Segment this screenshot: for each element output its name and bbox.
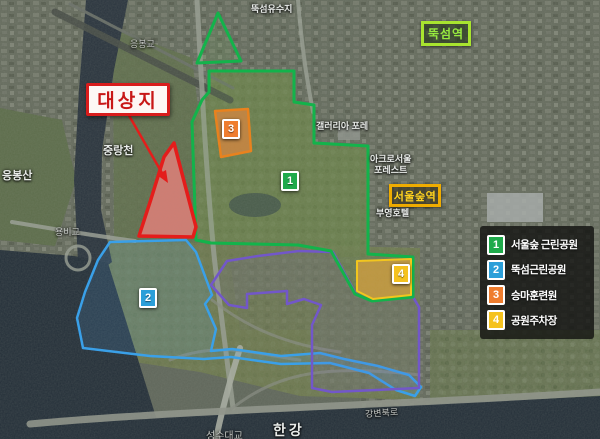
area-badge-1: 1 (281, 171, 299, 191)
station-badge-seoul-forest: 서울숲역 (389, 184, 441, 207)
legend-label-1: 서울숲 근린공원 (511, 237, 578, 252)
area-badge-4: 4 (392, 264, 410, 284)
area-badge-3: 3 (222, 119, 240, 139)
map-graphics (0, 0, 600, 439)
legend-label-4: 공원주차장 (511, 313, 557, 328)
legend-badge-4: 4 (487, 310, 505, 330)
area-badge-2: 2 (139, 288, 157, 308)
legend-item-parking: 4 공원주차장 (487, 310, 594, 330)
legend-badge-1: 1 (487, 235, 505, 255)
legend-badge-2: 2 (487, 260, 505, 280)
station-badge-ttukseom: 뚝섬역 (421, 21, 471, 46)
legend-item-ttukseom-park: 2 뚝섬근린공원 (487, 260, 594, 280)
legend-label-3: 승마훈련원 (511, 288, 557, 303)
satellite-map: 대상지 뚝섬역 서울숲역 1 2 3 4 뚝섬유수지 응봉교 중랑천 응봉산 용… (0, 0, 600, 439)
legend-badge-3: 3 (487, 285, 505, 305)
legend-label-2: 뚝섬근린공원 (511, 262, 566, 277)
target-site-label: 대상지 (86, 83, 170, 116)
legend-panel: 1 서울숲 근린공원 2 뚝섬근린공원 3 승마훈련원 4 공원주차장 (480, 226, 594, 339)
legend-item-seoul-forest-park: 1 서울숲 근린공원 (487, 235, 594, 255)
legend-item-riding-center: 3 승마훈련원 (487, 285, 594, 305)
